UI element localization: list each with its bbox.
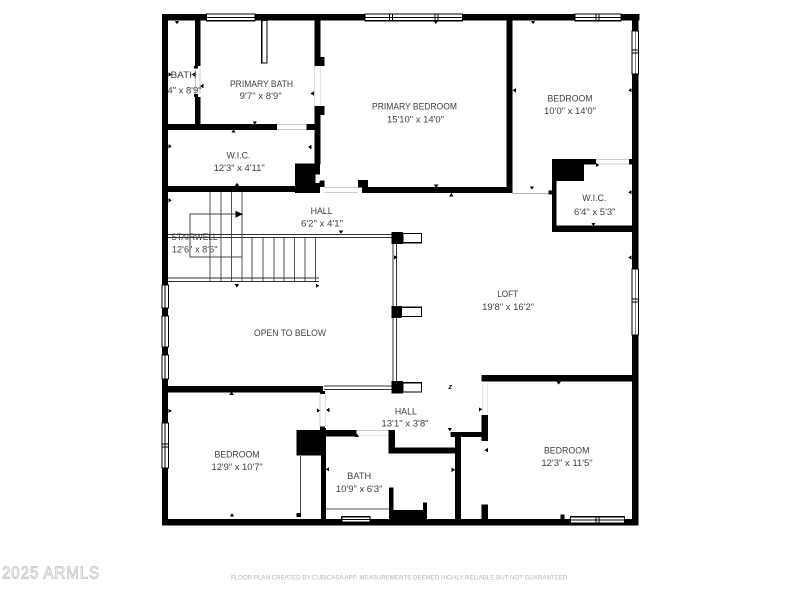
svg-text:2025 ARMLS: 2025 ARMLS <box>2 563 100 583</box>
svg-text:BATH: BATH <box>171 70 197 80</box>
svg-text:13'1" x 3'8": 13'1" x 3'8" <box>381 419 428 429</box>
svg-text:W.I.C.: W.I.C. <box>227 151 251 161</box>
svg-text:HALL: HALL <box>311 206 333 216</box>
svg-text:9'7" x 8'9": 9'7" x 8'9" <box>240 91 282 101</box>
svg-text:LOFT: LOFT <box>497 289 518 299</box>
svg-text:12'3" x 4'11": 12'3" x 4'11" <box>214 163 265 173</box>
svg-text:BEDROOM: BEDROOM <box>544 445 590 455</box>
svg-text:OPEN TO BELOW: OPEN TO BELOW <box>254 328 326 338</box>
svg-text:BEDROOM: BEDROOM <box>215 450 260 460</box>
svg-text:4" x 8'9": 4" x 8'9" <box>168 86 202 96</box>
svg-text:PRIMARY BATH: PRIMARY BATH <box>230 79 293 89</box>
svg-text:6'2" x 4'1": 6'2" x 4'1" <box>301 219 343 229</box>
svg-text:10'0" x 14'0": 10'0" x 14'0" <box>544 106 596 116</box>
svg-text:19'8" x 16'2": 19'8" x 16'2" <box>482 302 534 312</box>
svg-text:W.I.C.: W.I.C. <box>582 193 606 203</box>
svg-text:HALL: HALL <box>395 406 417 416</box>
svg-text:12'3" x 11'5": 12'3" x 11'5" <box>541 458 592 468</box>
svg-text:BATH: BATH <box>347 471 371 481</box>
svg-text:BEDROOM: BEDROOM <box>548 94 593 104</box>
svg-text:12'6" x 8'6": 12'6" x 8'6" <box>172 244 218 254</box>
svg-text:FLOOR PLAN CREATED BY CUBICASA: FLOOR PLAN CREATED BY CUBICASA APP. MEAS… <box>231 575 569 582</box>
svg-text:STAIRWELL: STAIRWELL <box>171 232 217 242</box>
svg-text:PRIMARY BEDROOM: PRIMARY BEDROOM <box>372 102 457 112</box>
svg-text:10'9" x 6'3": 10'9" x 6'3" <box>336 484 383 494</box>
svg-text:6'4" x 5'3": 6'4" x 5'3" <box>574 207 616 217</box>
svg-text:15'10" x 14'0": 15'10" x 14'0" <box>387 114 444 124</box>
svg-text:12'9" x 10'7": 12'9" x 10'7" <box>212 462 263 472</box>
svg-text:z: z <box>447 382 452 391</box>
